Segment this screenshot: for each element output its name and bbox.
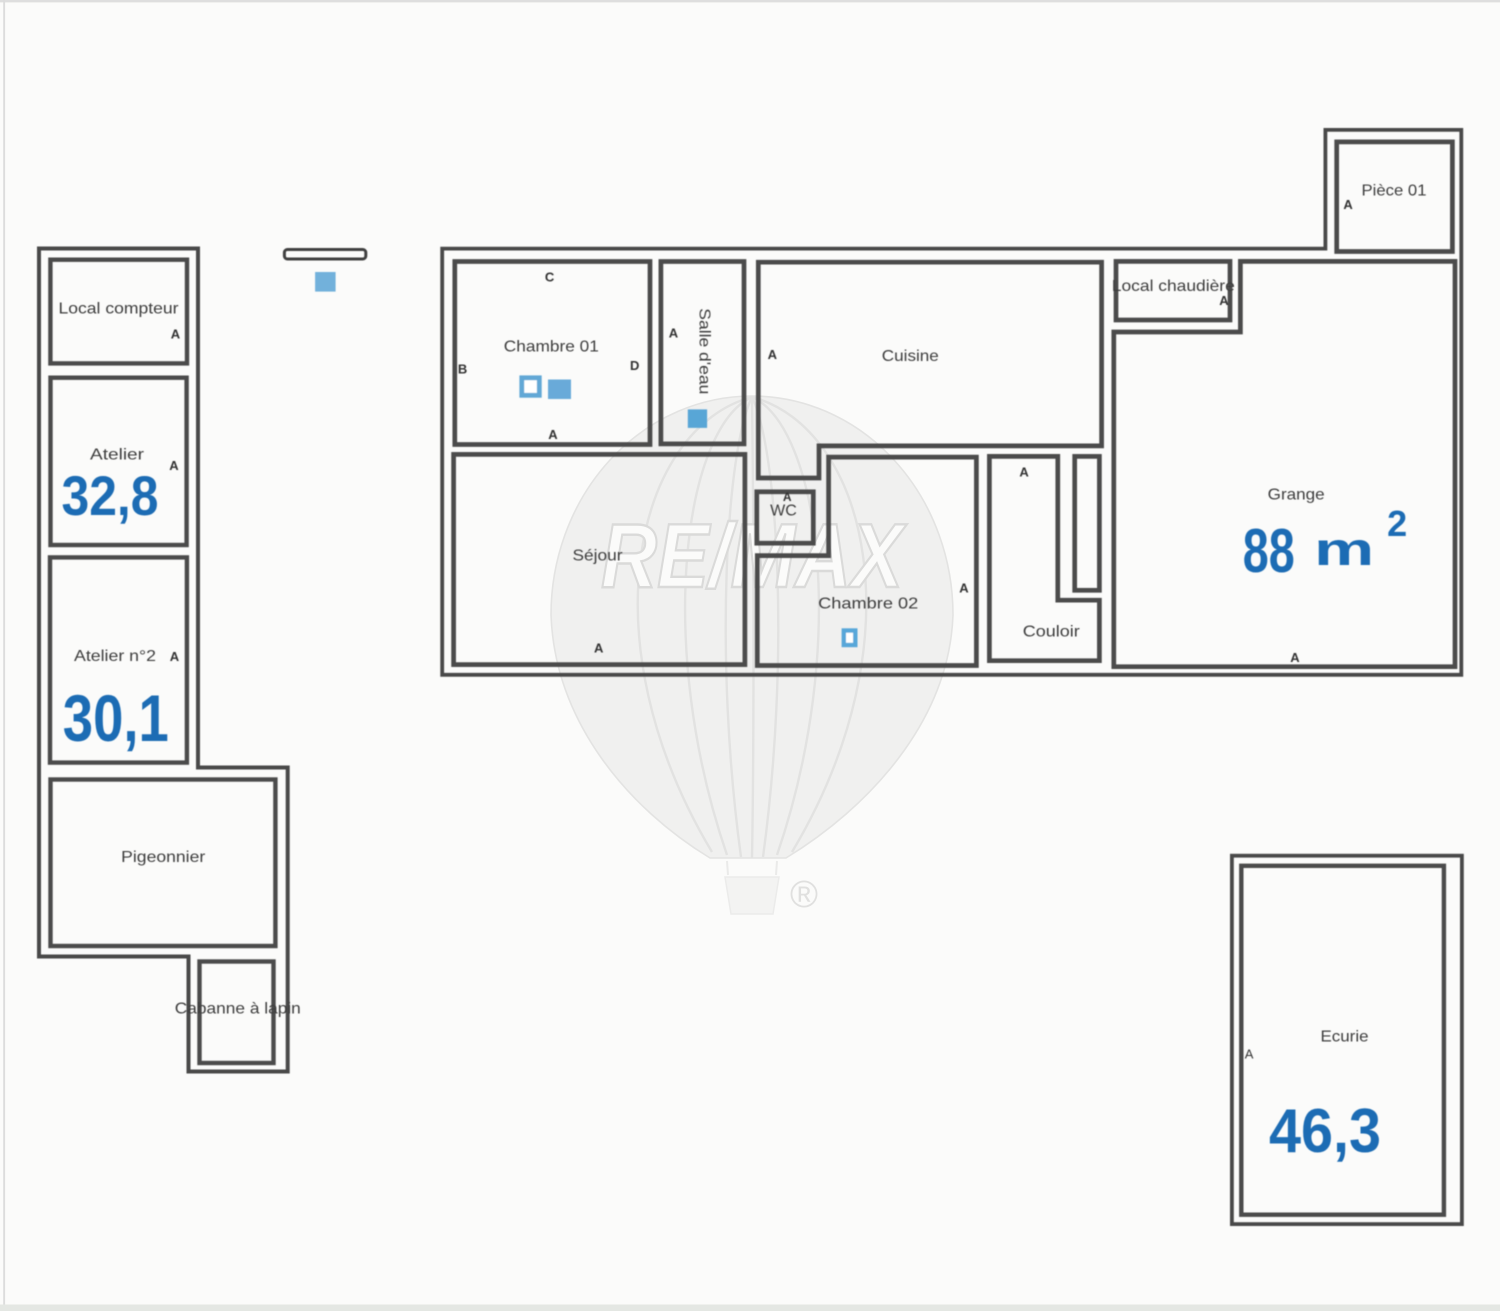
svg-text:Pigeonnier: Pigeonnier — [121, 849, 206, 866]
svg-text:A: A — [959, 581, 969, 596]
svg-text:A: A — [170, 649, 180, 664]
svg-text:A: A — [1290, 650, 1300, 665]
svg-text:Séjour: Séjour — [573, 548, 624, 565]
svg-text:46,3: 46,3 — [1269, 1097, 1381, 1166]
svg-text:Local chaudière: Local chaudière — [1112, 278, 1235, 295]
svg-text:Ecurie: Ecurie — [1321, 1029, 1369, 1046]
svg-text:D: D — [630, 358, 639, 373]
svg-text:®: ® — [790, 874, 818, 916]
svg-text:A: A — [1245, 1047, 1254, 1062]
svg-text:Cabanne à lapin: Cabanne à lapin — [175, 1001, 301, 1018]
svg-text:Cuisine: Cuisine — [882, 348, 939, 365]
svg-text:WC: WC — [770, 503, 797, 520]
svg-text:88: 88 — [1243, 517, 1295, 586]
svg-text:A: A — [594, 641, 604, 656]
svg-text:A: A — [768, 347, 778, 362]
svg-text:32,8: 32,8 — [62, 464, 159, 527]
svg-text:A: A — [669, 326, 679, 341]
svg-text:m: m — [1314, 523, 1374, 575]
svg-text:A: A — [171, 327, 181, 342]
svg-text:RE/MAX: RE/MAX — [601, 506, 908, 607]
svg-text:Pièce 01: Pièce 01 — [1362, 183, 1427, 200]
svg-text:A: A — [548, 427, 558, 442]
svg-text:A: A — [1343, 197, 1353, 212]
svg-text:A: A — [169, 458, 179, 473]
svg-text:Salle d'eau: Salle d'eau — [696, 308, 713, 394]
svg-text:Chambre 02: Chambre 02 — [818, 596, 918, 613]
svg-text:Grange: Grange — [1268, 487, 1325, 504]
svg-text:2: 2 — [1387, 503, 1407, 544]
svg-text:Chambre 01: Chambre 01 — [504, 339, 599, 356]
svg-text:Couloir: Couloir — [1023, 624, 1081, 641]
svg-text:Atelier: Atelier — [90, 447, 145, 464]
svg-text:C: C — [545, 270, 555, 285]
svg-text:A: A — [1219, 293, 1229, 308]
svg-text:A: A — [1019, 465, 1029, 480]
svg-text:Local compteur: Local compteur — [59, 301, 180, 318]
svg-text:B: B — [458, 362, 467, 377]
svg-text:30,1: 30,1 — [63, 681, 169, 755]
svg-text:Atelier n°2: Atelier n°2 — [74, 648, 156, 665]
